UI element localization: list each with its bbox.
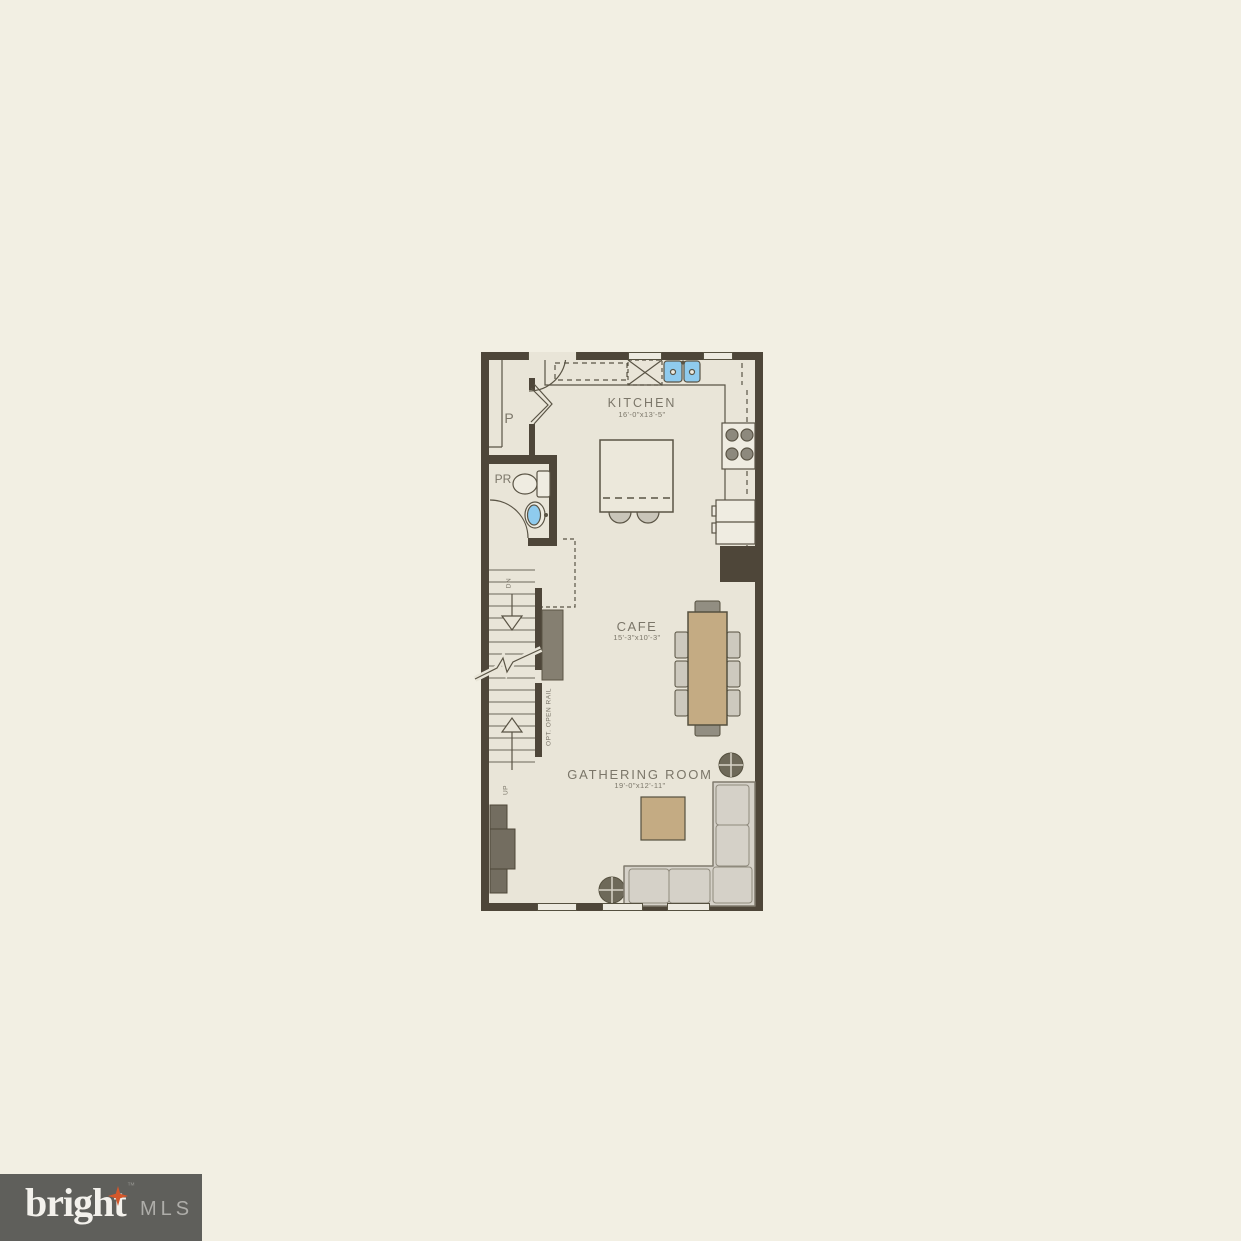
window [703, 352, 733, 360]
up-arrow-head [502, 718, 522, 732]
sink-drain [690, 370, 695, 375]
cafe-dining-set [675, 601, 740, 736]
window [602, 903, 643, 911]
stairs-down-label: DN [506, 578, 513, 588]
console-section [490, 829, 515, 869]
window [537, 903, 577, 911]
pantry-shelf-lines [489, 360, 502, 447]
pantry-label: P [504, 410, 513, 426]
stairs-up-label: UP [503, 785, 510, 795]
console-section [490, 869, 507, 893]
room-dims: 19'-0"x12'-11" [567, 782, 713, 790]
upper-cabinets-dashed [555, 363, 627, 380]
dining-chair [675, 661, 688, 687]
brightmls-logo: bright ™ MLS [0, 1174, 202, 1241]
range-burner [726, 429, 738, 441]
floorplan: KITCHEN 16'-0"x13'-5" CAFE 15'-3"x10'-3"… [481, 352, 763, 911]
logo-trademark: ™ [127, 1181, 135, 1190]
dining-chair [727, 661, 740, 687]
gathering-room-label: GATHERING ROOM 19'-0"x12'-11" [567, 768, 713, 791]
room-dims: 15'-3"x10'-3" [613, 634, 660, 642]
sink-faucet [544, 513, 548, 517]
dining-table [688, 612, 727, 725]
dining-chair [727, 632, 740, 658]
star-icon [107, 1185, 129, 1207]
dining-chair [695, 601, 720, 613]
optional-area-dashed [540, 539, 575, 607]
room-name: KITCHEN [608, 397, 677, 411]
powder-door-swing-arc [490, 500, 528, 538]
powder-right-wall [549, 455, 557, 546]
powder-sink-basin [528, 505, 541, 525]
dining-chair [695, 724, 720, 736]
wall-chase [720, 546, 755, 582]
logo-suffix-text: MLS [140, 1198, 193, 1221]
upper-cabinets-dashed [742, 363, 747, 578]
room-dims: 16'-0"x13'-5" [608, 411, 677, 419]
kitchen [545, 360, 755, 582]
range-burner [741, 429, 753, 441]
down-arrow-head [502, 616, 522, 630]
range-burner [741, 448, 753, 460]
range-burner [726, 448, 738, 460]
room-name: CAFE [613, 620, 660, 634]
pantry-powder-wall [489, 455, 557, 464]
toilet-bowl [513, 474, 537, 494]
refrigerator-handle [712, 523, 716, 533]
dining-chair [675, 690, 688, 716]
coffee-table [641, 797, 685, 840]
sink-drain [671, 370, 676, 375]
window [628, 352, 662, 360]
console-section [490, 805, 507, 829]
pantry-bifold-door [531, 388, 548, 422]
stair-rail-wall [535, 683, 542, 757]
kitchen-label: KITCHEN 16'-0"x13'-5" [608, 397, 677, 419]
dining-chair [727, 690, 740, 716]
cafe-label: CAFE 15'-3"x10'-3" [613, 620, 660, 643]
window [667, 903, 710, 911]
pantry [489, 354, 566, 463]
page-background: KITCHEN 16'-0"x13'-5" CAFE 15'-3"x10'-3"… [0, 0, 1241, 1241]
sink-faucet [681, 361, 685, 365]
open-rail-label: OPT. OPEN RAIL [546, 688, 553, 746]
powder-bottom-wall [528, 538, 557, 546]
toilet-tank [537, 471, 550, 497]
dining-chair [675, 632, 688, 658]
stair-half-wall [542, 610, 563, 680]
room-name: GATHERING ROOM [567, 768, 713, 782]
media-console [490, 805, 515, 893]
kitchen-island [600, 440, 673, 512]
entry-door-opening [528, 352, 577, 360]
powder-room-label: PR [495, 472, 512, 486]
stair-rail-wall [535, 588, 542, 670]
dishwasher-x [628, 360, 662, 385]
refrigerator-handle [712, 506, 716, 516]
